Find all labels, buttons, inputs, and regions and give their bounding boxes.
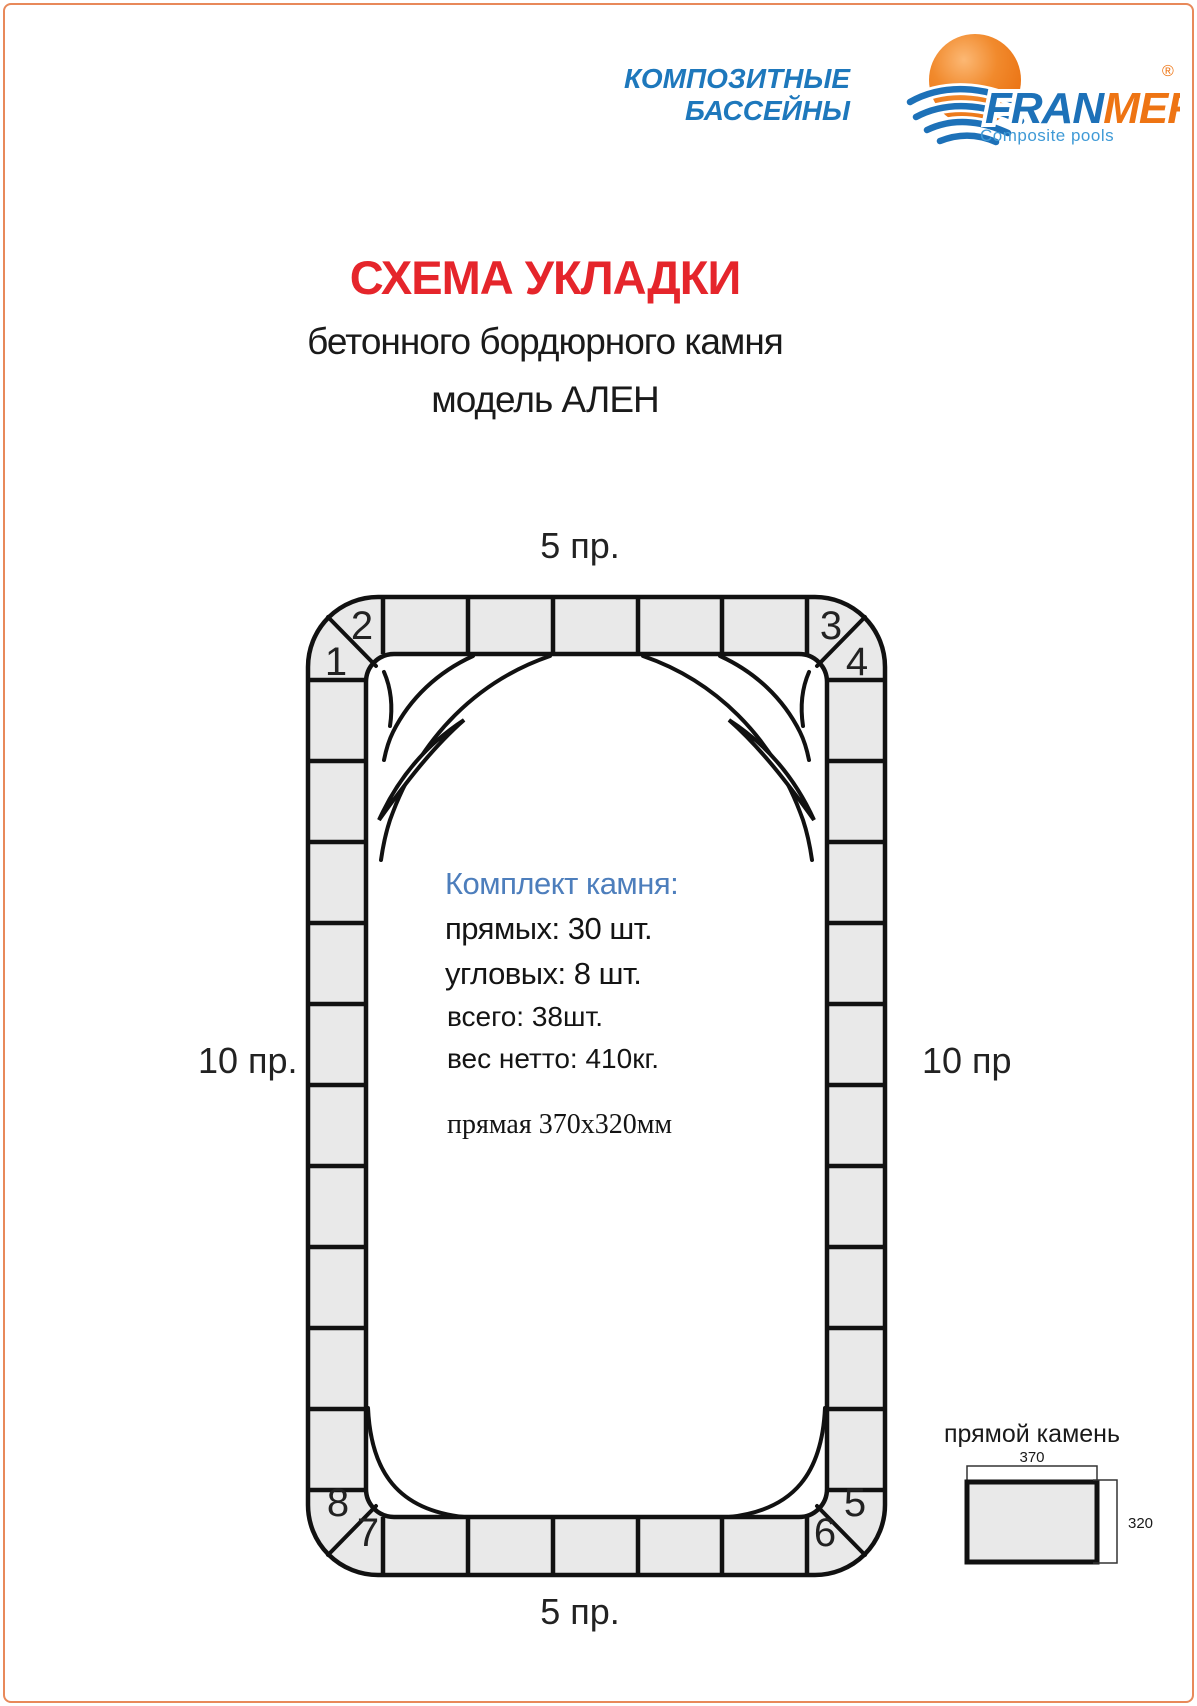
- page-title: СХЕМА УКЛАДКИ: [0, 250, 1090, 305]
- corner-number-7: 7: [357, 1511, 379, 1555]
- corner-number-8: 8: [327, 1481, 349, 1525]
- stone-detail-width-label: 370: [1019, 1449, 1044, 1466]
- page: КОМПОЗИТНЫЕ БАССЕЙНЫ FRANMER ® Composite…: [0, 0, 1197, 1706]
- stone-detail-rect: [967, 1482, 1097, 1562]
- corner-number-5: 5: [844, 1481, 866, 1525]
- subtitle-line2: модель АЛЕН: [0, 379, 1090, 421]
- kit-total-count: всего: 38шт.: [447, 1001, 678, 1033]
- corner-number-4: 4: [846, 640, 868, 684]
- subtitle-line1: бетонного бордюрного камня: [0, 321, 1090, 363]
- stone-detail-height-label: 320: [1128, 1515, 1153, 1532]
- kit-straight-count: прямых: 30 шт.: [445, 911, 678, 947]
- stone-detail-title: прямой камень: [944, 1420, 1120, 1448]
- stone-detail: прямой камень 370 320: [880, 1415, 1180, 1590]
- logo-tagline-line1: КОМПОЗИТНЫЕ: [624, 63, 851, 94]
- kit-net-weight: вес нетто: 410кг.: [447, 1043, 678, 1075]
- logo-tagline-line2: БАССЕЙНЫ: [685, 94, 851, 126]
- label-right-count: 10 пр.: [922, 1040, 1010, 1081]
- label-left-count: 10 пр.: [198, 1040, 298, 1081]
- kit-info: Комплект камня: прямых: 30 шт. угловых: …: [445, 866, 678, 1141]
- kit-corner-count: угловых: 8 шт.: [445, 956, 678, 992]
- title-block: СХЕМА УКЛАДКИ бетонного бордюрного камня…: [0, 250, 1090, 421]
- dimension-bracket-top: [967, 1466, 1097, 1481]
- corner-number-6: 6: [814, 1511, 836, 1555]
- corner-number-2: 2: [351, 604, 373, 648]
- brand-subtitle: Composite pools: [980, 126, 1114, 145]
- corner-number-1: 1: [325, 640, 347, 684]
- label-bottom-count: 5 пр.: [540, 1591, 620, 1632]
- corner-number-3: 3: [820, 604, 842, 648]
- kit-title: Комплект камня:: [445, 866, 678, 902]
- registered-mark-icon: ®: [1162, 63, 1174, 80]
- logo: КОМПОЗИТНЫЕ БАССЕЙНЫ FRANMER ® Composite…: [580, 28, 1180, 148]
- brand-mer: MER: [1103, 84, 1180, 133]
- label-top-count: 5 пр.: [540, 525, 620, 566]
- kit-stone-dimension: прямая 370х320мм: [447, 1109, 678, 1141]
